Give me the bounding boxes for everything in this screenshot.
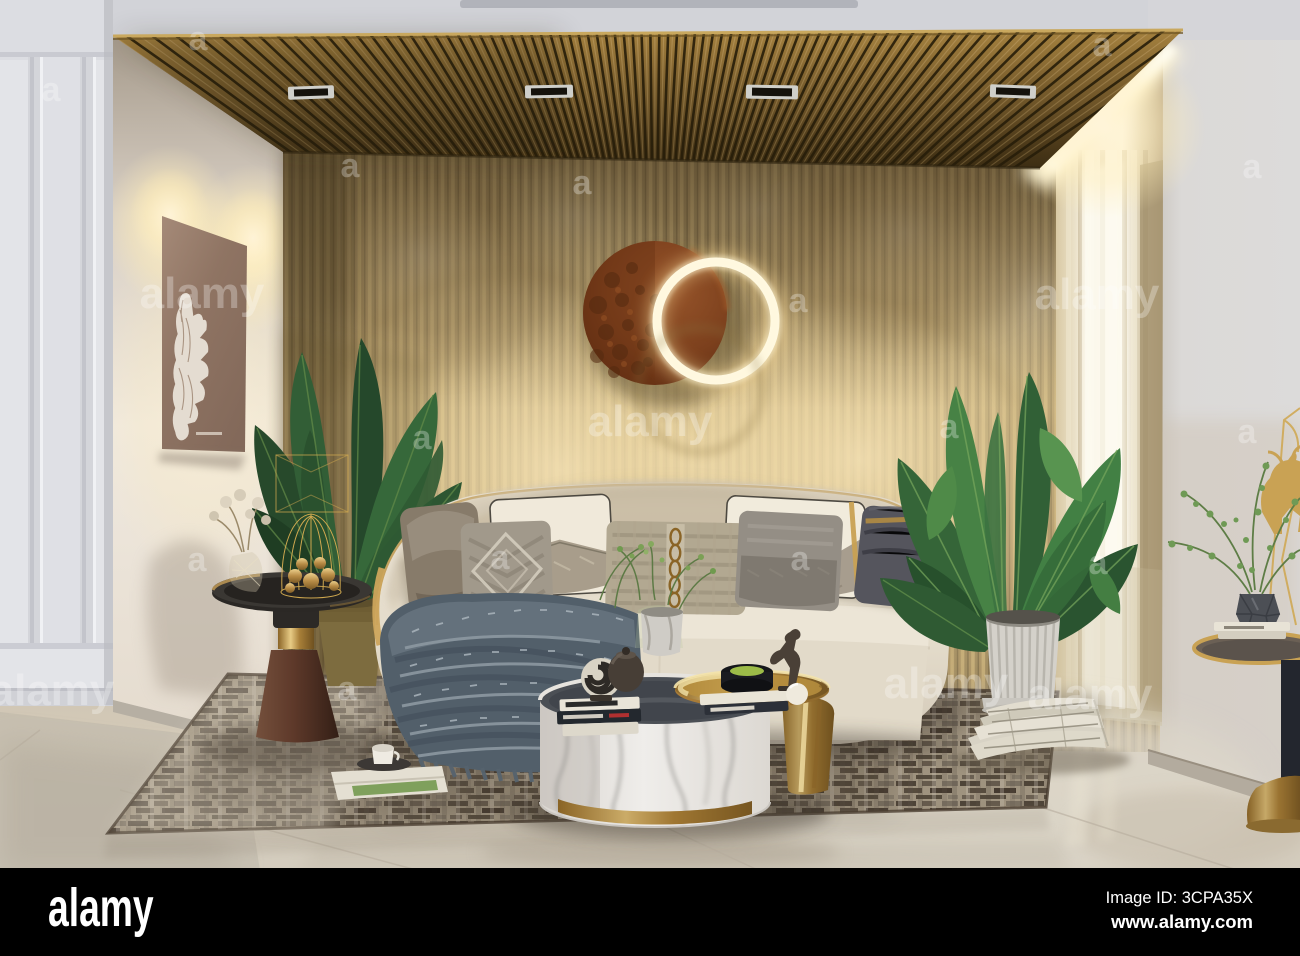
svg-text:a: a [1093,26,1113,64]
svg-text:a: a [42,71,62,109]
svg-text:alamy: alamy [1035,270,1160,319]
svg-text:a: a [189,20,209,58]
svg-text:alamy: alamy [140,269,265,318]
svg-text:a: a [338,670,358,708]
svg-text:a: a [1238,413,1258,451]
svg-text:a: a [1243,148,1263,186]
svg-text:a: a [1089,544,1109,582]
svg-text:www.alamy.com: www.alamy.com [1110,911,1253,932]
svg-text:a: a [413,419,433,457]
svg-text:a: a [573,164,593,202]
svg-text:a: a [188,541,208,579]
svg-text:alamy: alamy [884,659,1009,708]
svg-text:alamy: alamy [48,877,154,938]
svg-text:a: a [940,408,960,446]
svg-text:alamy: alamy [0,666,115,715]
svg-text:alamy: alamy [588,397,713,446]
svg-text:alamy: alamy [1028,670,1153,719]
svg-text:a: a [341,147,361,185]
svg-text:a: a [791,540,811,578]
svg-text:a: a [789,282,809,320]
svg-text:Image ID: 3CPA35X: Image ID: 3CPA35X [1106,889,1253,907]
svg-text:a: a [491,539,511,577]
